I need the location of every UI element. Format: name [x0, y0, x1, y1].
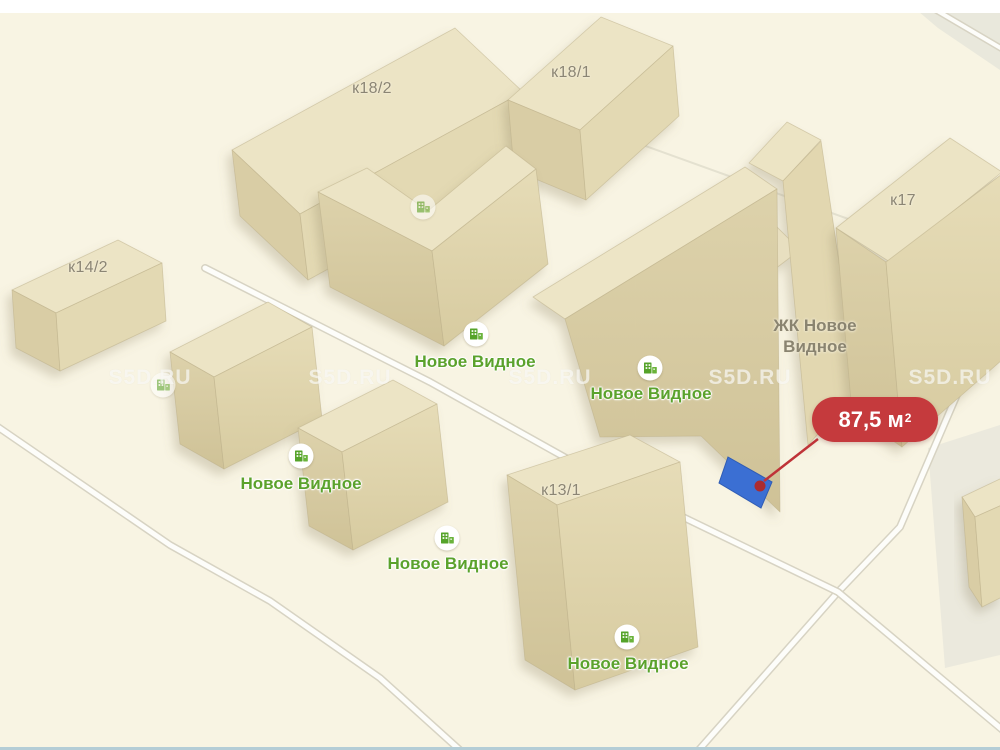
- building-k13-1: [507, 435, 698, 690]
- complex-name-label[interactable]: ЖК Новое Видное: [773, 315, 856, 357]
- watermark: S5D.RU: [508, 366, 591, 390]
- poi-label[interactable]: Новое Видное: [567, 654, 688, 674]
- building-label-k18-2: к18/2: [352, 80, 392, 98]
- area-badge-sup: 2: [905, 411, 912, 425]
- area-badge[interactable]: 87,5 м2: [812, 397, 938, 442]
- building-label-k13-1: к13/1: [541, 482, 581, 500]
- top-strip: [0, 0, 1000, 13]
- watermark: S5D.RU: [908, 366, 991, 390]
- complex-name-line2: Видное: [773, 336, 856, 357]
- area-badge-value: 87,5 м: [839, 407, 904, 433]
- poi-building-icon[interactable]: [434, 525, 460, 551]
- apartment-pointer-dot: [755, 481, 766, 492]
- watermark: S5D.RU: [708, 366, 791, 390]
- watermark: S5D.RU: [308, 366, 391, 390]
- poi-building-icon[interactable]: [463, 321, 489, 347]
- poi-label[interactable]: Новое Видное: [387, 554, 508, 574]
- poi-building-icon[interactable]: [288, 443, 314, 469]
- building-label-k17: к17: [890, 192, 916, 210]
- building-label-k14-2: к14/2: [68, 259, 108, 277]
- poi-building-icon[interactable]: [410, 194, 436, 220]
- poi-building-icon[interactable]: [637, 355, 663, 381]
- poi-label[interactable]: Новое Видное: [240, 474, 361, 494]
- poi-building-icon[interactable]: [614, 624, 640, 650]
- building-label-k18-1: к18/1: [551, 64, 591, 82]
- map-canvas[interactable]: к18/2 к18/1 к17 к14/2 к13/1 ЖК Новое Вид…: [0, 0, 1000, 750]
- watermark: S5D.RU: [108, 366, 191, 390]
- poi-label[interactable]: Новое Видное: [590, 384, 711, 404]
- complex-name-line1: ЖК Новое: [773, 315, 856, 336]
